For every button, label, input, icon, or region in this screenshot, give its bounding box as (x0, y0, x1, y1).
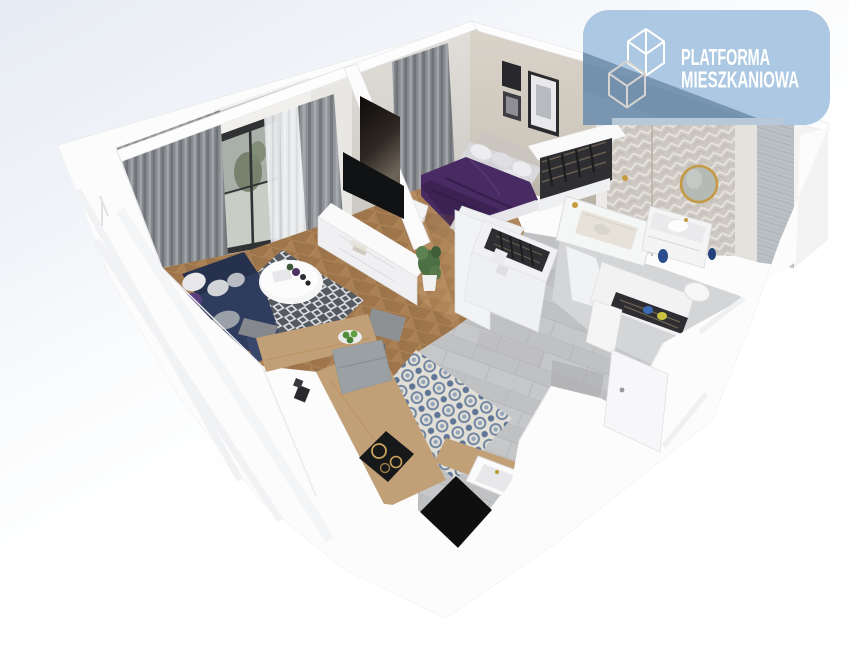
svg-text:MIESZKANIOWA: MIESZKANIOWA (681, 67, 799, 93)
